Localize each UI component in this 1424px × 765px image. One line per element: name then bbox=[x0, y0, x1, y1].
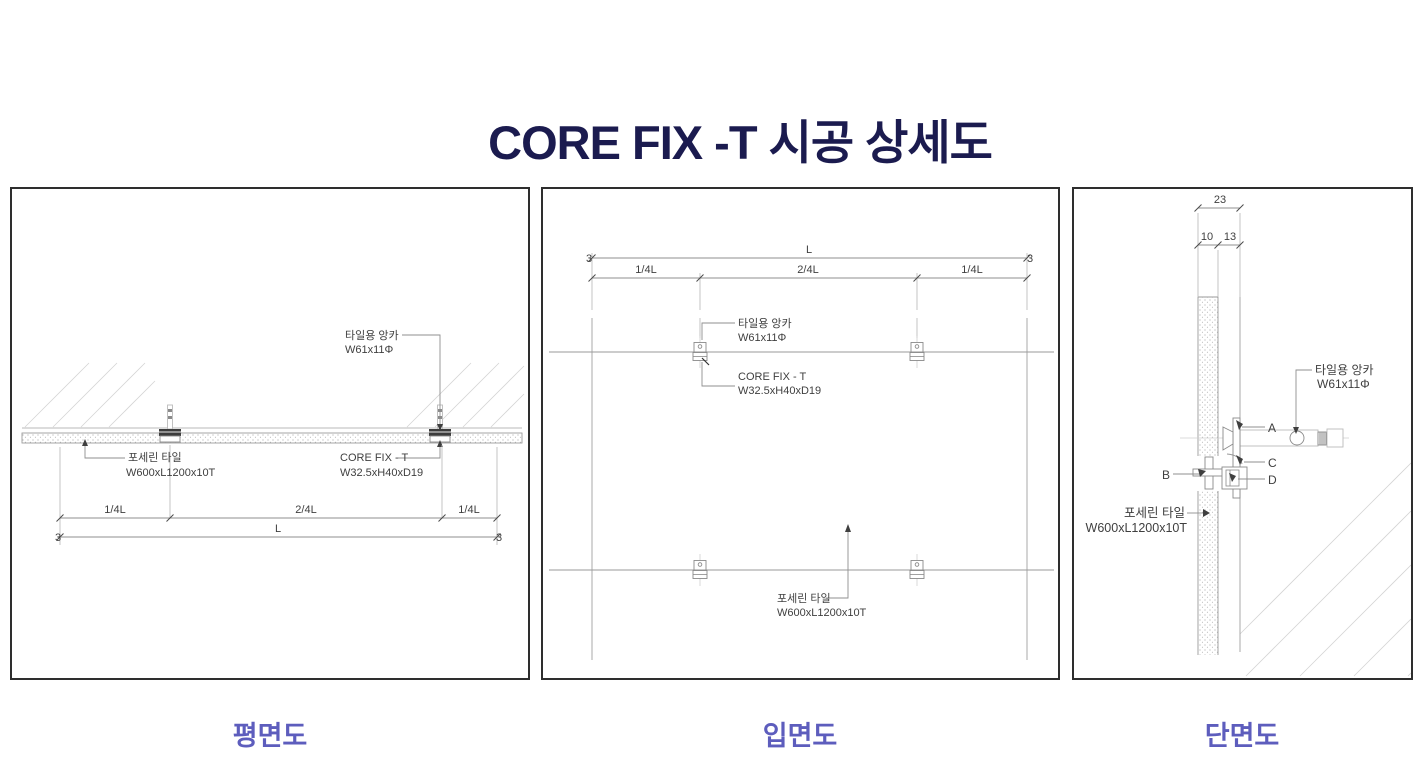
dim-end-right: 3 bbox=[496, 532, 502, 544]
corefix-callout-line2: W32.5xH40xD19 bbox=[340, 467, 423, 479]
corefix-callout-line1: CORE FIX - T bbox=[738, 371, 807, 383]
tile-callout-line1: 포세린 타일 bbox=[128, 450, 182, 464]
anchor-callout-line2: W61x11Φ bbox=[345, 344, 394, 356]
anchor-callout-line1: 타일용 앙카 bbox=[738, 316, 792, 330]
dim-total-length: L bbox=[806, 244, 812, 256]
anchor-callout-line1: 타일용 앙카 bbox=[1315, 363, 1374, 377]
section-view-panel: 23 10 13 타일용 앙카 W61x11Φ A B C D 포세린 타일 W… bbox=[1072, 187, 1413, 680]
corefix-callout-line1: CORE FIX - T bbox=[340, 452, 409, 464]
dim-quarter-right: 1/4L bbox=[961, 264, 982, 276]
dim-half-mid: 2/4L bbox=[295, 504, 316, 516]
anchor-callout-line1: 타일용 앙카 bbox=[345, 328, 399, 342]
anchor-callout-line2: W61x11Φ bbox=[1317, 377, 1370, 391]
dim-quarter-left: 1/4L bbox=[104, 504, 125, 516]
dim-gap: 13 bbox=[1224, 231, 1236, 243]
dimension-lines bbox=[1195, 205, 1244, 298]
elevation-drawing: 타일용 앙카 W61x11Φ CORE FIX - T W32.5xH40xD1… bbox=[543, 189, 1058, 678]
hatch-lines-right bbox=[407, 363, 524, 427]
plan-view-panel: 타일용 앙카 W61x11Φ 포세린 타일 W600xL1200x10T COR… bbox=[10, 187, 530, 680]
hatch-lines bbox=[1240, 463, 1411, 676]
part-label-d: D bbox=[1268, 473, 1277, 487]
caption-section-view: 단면도 bbox=[1142, 714, 1342, 753]
anchor-assembly-left bbox=[159, 405, 181, 442]
dim-total-width: 23 bbox=[1214, 194, 1226, 206]
dim-half-mid: 2/4L bbox=[797, 264, 818, 276]
part-label-c: C bbox=[1268, 456, 1277, 470]
elevation-view-panel: 타일용 앙카 W61x11Φ CORE FIX - T W32.5xH40xD1… bbox=[541, 187, 1060, 680]
tile-callout-line2: W600xL1200x10T bbox=[1086, 521, 1188, 535]
tile-callout-line2: W600xL1200x10T bbox=[126, 467, 216, 479]
anchor-callout-line2: W61x11Φ bbox=[738, 332, 787, 344]
dim-end-right: 3 bbox=[1027, 253, 1033, 265]
detail-drawing-page: CORE FIX -T 시공 상세도 bbox=[0, 0, 1424, 765]
anchor-clip bbox=[693, 554, 707, 586]
leader-lines bbox=[702, 323, 851, 598]
caption-plan-view: 평면도 bbox=[170, 714, 370, 753]
hatch-lines-left bbox=[25, 363, 155, 427]
section-drawing: 23 10 13 타일용 앙카 W61x11Φ A B C D 포세린 타일 W… bbox=[1074, 189, 1411, 678]
tile-callout-line1: 포세린 타일 bbox=[777, 591, 831, 605]
dim-total-length: L bbox=[275, 523, 281, 535]
dim-tile-thickness: 10 bbox=[1201, 231, 1213, 243]
plan-drawing: 타일용 앙카 W61x11Φ 포세린 타일 W600xL1200x10T COR… bbox=[12, 189, 528, 678]
dim-quarter-right: 1/4L bbox=[458, 504, 479, 516]
dimension-lines bbox=[589, 253, 1031, 310]
caption-elevation-view: 입면도 bbox=[700, 714, 900, 753]
tile-callout-line2: W600xL1200x10T bbox=[777, 607, 867, 619]
part-label-b: B bbox=[1162, 468, 1170, 482]
page-title: CORE FIX -T 시공 상세도 bbox=[56, 104, 1424, 173]
anchor-clip bbox=[910, 336, 924, 368]
tile-callout-line1: 포세린 타일 bbox=[1124, 506, 1185, 520]
dim-quarter-left: 1/4L bbox=[635, 264, 656, 276]
dim-end-left: 3 bbox=[55, 532, 61, 544]
dim-end-left: 3 bbox=[586, 253, 592, 265]
corefix-callout-line2: W32.5xH40xD19 bbox=[738, 385, 821, 397]
anchor-clip bbox=[910, 554, 924, 586]
part-label-a: A bbox=[1268, 421, 1276, 435]
